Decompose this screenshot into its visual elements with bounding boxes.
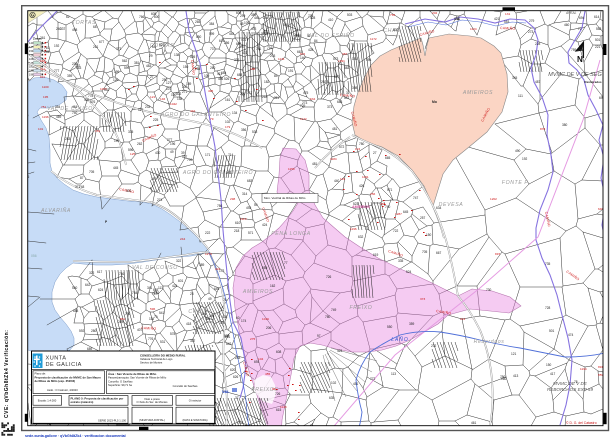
svg-text:FREIXO: FREIXO [350, 305, 373, 311]
svg-text:sede.xunta.gal/cve · qVbGh8tZk: sede.xunta.gal/cve · qVbGh8tZk4 · verifi… [25, 434, 126, 438]
svg-text:Rebordaos: Rebordaos [474, 339, 505, 345]
svg-text:573: 573 [333, 57, 339, 61]
svg-text:481: 481 [332, 127, 338, 131]
svg-text:VAL DE COUSO: VAL DE COUSO [47, 106, 93, 112]
svg-text:354: 354 [55, 105, 61, 109]
svg-text:688: 688 [337, 100, 343, 104]
svg-text:192: 192 [54, 44, 60, 48]
svg-text:(DATA E SINATURA): (DATA E SINATURA) [182, 418, 207, 422]
svg-text:126: 126 [113, 78, 119, 82]
svg-text:523: 523 [353, 202, 359, 206]
svg-text:97: 97 [317, 334, 321, 338]
svg-text:150: 150 [426, 233, 432, 237]
svg-text:642: 642 [85, 283, 91, 287]
svg-text:737: 737 [210, 47, 216, 51]
svg-text:102: 102 [331, 381, 337, 385]
svg-text:77: 77 [284, 261, 288, 265]
svg-text:78: 78 [574, 380, 578, 384]
svg-text:056: 056 [31, 254, 37, 258]
svg-text:740: 740 [72, 111, 78, 115]
svg-text:Concello do Saviñao: Concello do Saviñao [173, 384, 198, 388]
svg-text:460: 460 [564, 23, 570, 27]
svg-text:188: 188 [250, 67, 255, 71]
svg-text:615: 615 [276, 408, 282, 412]
svg-text:225: 225 [153, 118, 159, 122]
svg-text:131: 131 [505, 12, 510, 16]
svg-text:526: 526 [224, 77, 230, 81]
svg-text:206: 206 [266, 326, 272, 330]
svg-text:780: 780 [359, 142, 365, 146]
svg-text:87: 87 [80, 176, 84, 180]
svg-text:Superficie: 99,71 ha: Superficie: 99,71 ha [108, 383, 132, 387]
svg-text:111: 111 [518, 94, 523, 98]
svg-text:261: 261 [93, 45, 99, 49]
svg-text:1196: 1196 [42, 115, 49, 119]
svg-text:345: 345 [512, 76, 518, 80]
svg-text:595: 595 [283, 23, 289, 27]
svg-text:271: 271 [182, 90, 188, 94]
svg-text:373: 373 [327, 105, 333, 109]
svg-text:192: 192 [522, 157, 528, 161]
svg-text:127: 127 [138, 108, 144, 112]
svg-text:181: 181 [352, 57, 358, 61]
svg-text:228: 228 [535, 42, 541, 46]
svg-text:151: 151 [225, 335, 231, 339]
svg-text:440: 440 [334, 179, 340, 183]
svg-text:191: 191 [288, 69, 294, 73]
svg-text:602: 602 [393, 28, 399, 32]
svg-text:571: 571 [248, 231, 254, 235]
svg-text:722: 722 [393, 229, 399, 233]
svg-text:125: 125 [130, 152, 135, 156]
svg-text:541: 541 [159, 311, 165, 315]
svg-text:620: 620 [230, 368, 236, 372]
svg-text:Asdo.: O Instrutor, 4/2023: Asdo.: O Instrutor, 4/2023 [47, 388, 78, 392]
svg-text:245: 245 [44, 50, 50, 54]
svg-text:196: 196 [170, 142, 176, 146]
svg-text:786: 786 [217, 204, 223, 208]
svg-text:475: 475 [303, 91, 309, 95]
svg-text:615: 615 [219, 39, 225, 43]
svg-text:Xefatura Territorial de Lugo: Xefatura Territorial de Lugo [140, 357, 173, 361]
svg-text:Servizo de Montes: Servizo de Montes [140, 361, 163, 365]
svg-text:1184: 1184 [330, 157, 337, 161]
svg-text:VAL DO ESPIÑO: VAL DO ESPIÑO [307, 32, 355, 39]
svg-text:772: 772 [370, 377, 376, 381]
svg-text:359: 359 [409, 322, 415, 326]
svg-text:113: 113 [391, 372, 396, 376]
svg-text:AGRO DO GALANTEIRO: AGRO DO GALANTEIRO [182, 170, 253, 176]
svg-text:740: 740 [385, 205, 391, 209]
svg-text:614: 614 [594, 15, 600, 19]
svg-text:Concello: O Saviñao: Concello: O Saviñao [108, 379, 133, 383]
svg-text:751: 751 [455, 17, 461, 21]
svg-text:555: 555 [262, 266, 268, 270]
svg-text:501: 501 [549, 329, 555, 333]
svg-text:27: 27 [373, 151, 377, 155]
svg-text:254: 254 [294, 33, 300, 37]
svg-text:302: 302 [126, 189, 132, 193]
svg-text:594: 594 [366, 58, 372, 62]
svg-text:780: 780 [325, 315, 331, 319]
svg-text:429: 429 [84, 98, 90, 102]
svg-text:150: 150 [546, 363, 552, 367]
svg-text:417: 417 [550, 372, 556, 376]
svg-text:147: 147 [29, 45, 34, 49]
svg-text:605: 605 [151, 12, 157, 16]
svg-text:553: 553 [504, 20, 510, 24]
svg-text:626: 626 [233, 375, 239, 379]
svg-text:634: 634 [436, 206, 442, 210]
svg-text:CAMIÑO: CAMIÑO [500, 25, 516, 31]
svg-text:MVMC DE V DE: MVMC DE V DE [553, 381, 588, 386]
svg-text:158: 158 [177, 97, 183, 101]
svg-text:746: 746 [119, 272, 125, 276]
svg-text:101: 101 [38, 127, 43, 131]
svg-text:1196: 1196 [350, 227, 357, 231]
svg-text:DE GALICIA: DE GALICIA [46, 362, 82, 368]
svg-text:705: 705 [422, 250, 428, 254]
svg-text:29: 29 [149, 54, 153, 58]
svg-text:694: 694 [579, 16, 585, 20]
svg-text:775: 775 [308, 14, 314, 18]
svg-text:815: 815 [495, 252, 500, 256]
svg-text:716: 716 [267, 46, 273, 50]
svg-text:398: 398 [352, 86, 358, 90]
svg-text:121: 121 [511, 352, 517, 356]
svg-text:878: 878 [540, 127, 545, 131]
svg-text:291: 291 [240, 92, 246, 96]
svg-text:387: 387 [190, 339, 196, 343]
svg-text:107: 107 [166, 87, 172, 91]
svg-text:76: 76 [223, 298, 227, 302]
svg-text:359: 359 [67, 74, 73, 78]
svg-text:461: 461 [72, 105, 78, 109]
svg-text:356: 356 [241, 128, 247, 132]
svg-text:765: 765 [390, 13, 395, 17]
svg-text:AGRO DO GALANTEIRO: AGRO DO GALANTEIRO [160, 112, 231, 118]
svg-text:199: 199 [114, 70, 120, 74]
svg-text:619: 619 [373, 253, 379, 257]
svg-text:461: 461 [471, 421, 477, 425]
svg-text:Paraxe/parroquia: San Vicente: Paraxe/parroquia: San Vicente de Ribas d… [108, 376, 167, 380]
svg-text:299: 299 [240, 14, 246, 18]
svg-text:742: 742 [238, 421, 244, 425]
svg-text:592: 592 [226, 171, 232, 175]
svg-text:49: 49 [208, 297, 212, 301]
svg-text:257: 257 [420, 216, 426, 220]
svg-text:60: 60 [236, 316, 240, 320]
svg-text:624: 624 [98, 288, 104, 292]
svg-text:ALVARIÑA: ALVARIÑA [40, 207, 71, 214]
svg-text:1100: 1100 [42, 85, 49, 89]
svg-text:495: 495 [220, 321, 226, 325]
svg-text:102: 102 [225, 120, 231, 124]
svg-text:127: 127 [166, 81, 172, 85]
svg-text:381: 381 [134, 61, 140, 65]
svg-text:FONTE F: FONTE F [502, 180, 529, 186]
svg-text:748: 748 [79, 185, 85, 189]
svg-text:1091: 1091 [338, 59, 345, 63]
svg-text:1131: 1131 [278, 57, 285, 61]
svg-text:1172: 1172 [370, 37, 377, 41]
svg-text:203: 203 [270, 54, 276, 58]
svg-text:645: 645 [214, 287, 220, 291]
svg-text:693: 693 [254, 360, 260, 364]
svg-text:684: 684 [221, 71, 227, 75]
svg-text:677: 677 [99, 40, 105, 44]
svg-text:N: N [577, 55, 583, 64]
svg-text:AMIEIROS: AMIEIROS [462, 90, 493, 96]
svg-text:160: 160 [501, 377, 507, 381]
svg-text:428: 428 [308, 48, 314, 52]
svg-text:CONSELLERÍA DO MEDIO RURAL: CONSELLERÍA DO MEDIO RURAL [140, 353, 186, 358]
svg-text:218: 218 [234, 229, 240, 233]
svg-text:683: 683 [247, 179, 253, 183]
svg-text:527: 527 [182, 155, 188, 159]
svg-text:380: 380 [562, 123, 568, 127]
svg-text:283: 283 [65, 137, 71, 141]
svg-text:487: 487 [535, 80, 541, 84]
svg-text:Área : San Vicente de Ribas de: Área : San Vicente de Ribas de Miño [108, 371, 157, 376]
svg-text:109: 109 [244, 21, 250, 25]
svg-text:(SINATURA DIXITAL): (SINATURA DIXITAL) [139, 418, 165, 422]
svg-text:124: 124 [355, 147, 360, 151]
svg-text:410: 410 [328, 18, 334, 22]
svg-text:322: 322 [176, 259, 182, 263]
svg-text:273: 273 [528, 30, 534, 34]
svg-text:811: 811 [40, 75, 45, 79]
svg-text:473: 473 [251, 27, 257, 31]
svg-text:693: 693 [153, 288, 159, 292]
svg-text:279: 279 [529, 19, 535, 23]
svg-text:481: 481 [312, 162, 318, 166]
svg-text:421: 421 [494, 17, 500, 21]
svg-text:1270: 1270 [205, 252, 212, 256]
svg-text:750: 750 [125, 312, 131, 316]
svg-text:469: 469 [56, 115, 62, 119]
svg-text:84: 84 [314, 39, 318, 43]
svg-text:617: 617 [97, 270, 103, 274]
svg-text:275: 275 [250, 337, 255, 341]
svg-text:277: 277 [167, 138, 173, 142]
svg-text:596: 596 [128, 148, 134, 152]
svg-text:442: 442 [190, 109, 195, 113]
svg-text:173: 173 [219, 269, 225, 273]
svg-text:625: 625 [159, 43, 165, 47]
svg-text:AREAL: AREAL [565, 11, 577, 15]
svg-text:335: 335 [128, 130, 134, 134]
svg-text:189: 189 [186, 82, 192, 86]
svg-text:244: 244 [263, 16, 269, 20]
svg-text:52: 52 [307, 34, 311, 38]
svg-text:84: 84 [274, 74, 278, 78]
svg-text:635: 635 [329, 396, 335, 400]
svg-text:599: 599 [124, 66, 130, 70]
svg-text:418: 418 [186, 322, 192, 326]
svg-text:196: 196 [29, 73, 34, 77]
svg-text:492: 492 [246, 206, 252, 210]
svg-text:222: 222 [205, 231, 211, 235]
svg-text:495: 495 [208, 89, 213, 93]
svg-text:531: 531 [160, 340, 166, 344]
svg-text:601: 601 [178, 279, 184, 283]
svg-text:134: 134 [232, 111, 238, 115]
svg-text:714: 714 [228, 153, 234, 157]
svg-text:451: 451 [353, 382, 359, 386]
svg-text:1161: 1161 [362, 175, 369, 179]
svg-text:221: 221 [595, 45, 601, 49]
svg-text:341: 341 [147, 286, 153, 290]
svg-text:728: 728 [545, 306, 551, 310]
svg-text:596: 596 [150, 307, 155, 311]
svg-text:764: 764 [205, 317, 211, 321]
svg-text:322: 322 [89, 271, 95, 275]
svg-text:426: 426 [359, 184, 365, 188]
svg-text:1019: 1019 [262, 317, 269, 321]
svg-text:571: 571 [387, 188, 393, 192]
svg-text:182: 182 [264, 80, 270, 84]
svg-text:de Ribas de Miño (exp. 352/03): de Ribas de Miño (exp. 352/03) [35, 379, 76, 383]
svg-text:214: 214 [460, 317, 465, 321]
svg-text:244: 244 [180, 237, 185, 241]
svg-text:773: 773 [116, 47, 122, 51]
svg-text:1042: 1042 [170, 102, 177, 106]
svg-text:202: 202 [321, 80, 327, 84]
svg-text:AMIEIROS: AMIEIROS [242, 289, 273, 295]
svg-text:31: 31 [346, 91, 350, 95]
svg-text:741: 741 [256, 47, 262, 51]
svg-text:502: 502 [176, 92, 182, 96]
svg-text:583: 583 [344, 66, 350, 70]
svg-text:532: 532 [104, 88, 110, 92]
svg-text:578: 578 [170, 332, 176, 336]
svg-text:195: 195 [43, 95, 48, 99]
svg-text:LAÑO: LAÑO [391, 336, 409, 343]
svg-text:298: 298 [230, 197, 235, 201]
svg-text:Mo: Mo [432, 100, 437, 104]
svg-text:438: 438 [222, 315, 228, 319]
svg-text:SERIE 2023-PL5 1:100: SERIE 2023-PL5 1:100 [98, 419, 126, 423]
svg-text:1110: 1110 [240, 217, 247, 221]
svg-text:751: 751 [41, 105, 46, 109]
svg-text:O instrutor: O instrutor [189, 399, 202, 403]
svg-text:456: 456 [218, 77, 224, 81]
svg-text:501: 501 [595, 38, 601, 42]
svg-text:265: 265 [195, 20, 201, 24]
svg-text:709: 709 [187, 158, 193, 162]
svg-text:387: 387 [342, 52, 347, 56]
svg-text:262: 262 [137, 142, 143, 146]
svg-text:189: 189 [29, 69, 34, 73]
svg-text:72: 72 [578, 27, 582, 31]
svg-text:XUNTA: XUNTA [46, 356, 67, 362]
svg-text:174: 174 [241, 319, 247, 323]
svg-text:642: 642 [226, 342, 232, 346]
svg-text:274: 274 [157, 198, 163, 202]
svg-text:233: 233 [145, 105, 151, 109]
svg-text:498: 498 [72, 28, 78, 32]
svg-text:645: 645 [403, 210, 409, 214]
svg-text:335: 335 [398, 259, 404, 263]
svg-text:663: 663 [297, 50, 303, 54]
svg-text:333: 333 [234, 58, 240, 62]
svg-text:146: 146 [160, 97, 165, 101]
svg-text:1172: 1172 [300, 117, 307, 121]
svg-text:401: 401 [241, 38, 247, 42]
svg-text:68: 68 [93, 25, 97, 29]
svg-text:550: 550 [196, 35, 202, 39]
svg-text:608: 608 [276, 350, 282, 354]
svg-text:232: 232 [431, 344, 437, 348]
svg-text:261: 261 [40, 36, 46, 40]
svg-text:146: 146 [300, 56, 306, 60]
svg-text:474: 474 [568, 333, 574, 337]
svg-text:766: 766 [139, 15, 145, 19]
svg-text:248: 248 [235, 356, 241, 360]
svg-text:455: 455 [265, 372, 270, 376]
svg-text:524: 524 [406, 270, 412, 274]
svg-text:483: 483 [146, 64, 152, 68]
svg-text:CVE: qVbGh8tZk4 Verificación:: CVE: qVbGh8tZk4 Verificación: [4, 330, 10, 418]
svg-text:688: 688 [237, 73, 243, 77]
svg-text:280: 280 [91, 329, 97, 333]
svg-text:437: 437 [242, 51, 248, 55]
svg-text:726: 726 [275, 392, 281, 396]
svg-text:VAL: VAL [222, 389, 230, 394]
svg-text:730: 730 [486, 288, 492, 292]
svg-text:151: 151 [95, 129, 100, 133]
svg-text:© D. G. del Catastro: © D. G. del Catastro [566, 421, 597, 425]
svg-text:256: 256 [370, 192, 375, 196]
svg-text:735: 735 [545, 262, 551, 266]
svg-text:256: 256 [224, 41, 230, 45]
svg-text:424: 424 [172, 284, 178, 288]
svg-text:150: 150 [183, 65, 189, 69]
svg-text:27: 27 [150, 75, 154, 79]
svg-text:705: 705 [89, 170, 95, 174]
svg-text:424: 424 [262, 223, 268, 227]
svg-text:70: 70 [154, 315, 158, 319]
svg-text:167: 167 [151, 177, 157, 181]
svg-text:PENA LONGA: PENA LONGA [271, 231, 311, 237]
svg-text:estrato (catastro): estrato (catastro) [71, 400, 94, 404]
svg-text:Escala: 1:4.000: Escala: 1:4.000 [38, 399, 57, 403]
svg-text:Mon. Veciñal de Ribas de Miño: Mon. Veciñal de Ribas de Miño [264, 196, 306, 200]
svg-text:O Xefe do Ser. de Montes: O Xefe do Ser. de Montes [137, 400, 169, 404]
svg-text:445: 445 [113, 166, 119, 170]
svg-text:754: 754 [132, 291, 138, 295]
svg-text:749: 749 [331, 308, 337, 312]
svg-text:726: 726 [326, 275, 332, 279]
svg-text:1287: 1287 [395, 212, 402, 216]
svg-text:424: 424 [337, 349, 343, 353]
svg-text:62: 62 [66, 15, 70, 19]
svg-text:260: 260 [210, 66, 216, 70]
svg-text:413: 413 [513, 374, 519, 378]
svg-text:562: 562 [122, 59, 128, 63]
svg-text:340: 340 [201, 312, 207, 316]
svg-text:490: 490 [515, 149, 521, 153]
svg-text:384: 384 [209, 22, 215, 26]
svg-text:111: 111 [158, 286, 163, 290]
svg-text:777: 777 [54, 69, 60, 73]
svg-text:632: 632 [358, 235, 364, 239]
svg-text:577: 577 [334, 75, 340, 79]
svg-text:550: 550 [72, 286, 78, 290]
svg-text:572: 572 [339, 145, 345, 149]
svg-text:50: 50 [254, 203, 258, 207]
